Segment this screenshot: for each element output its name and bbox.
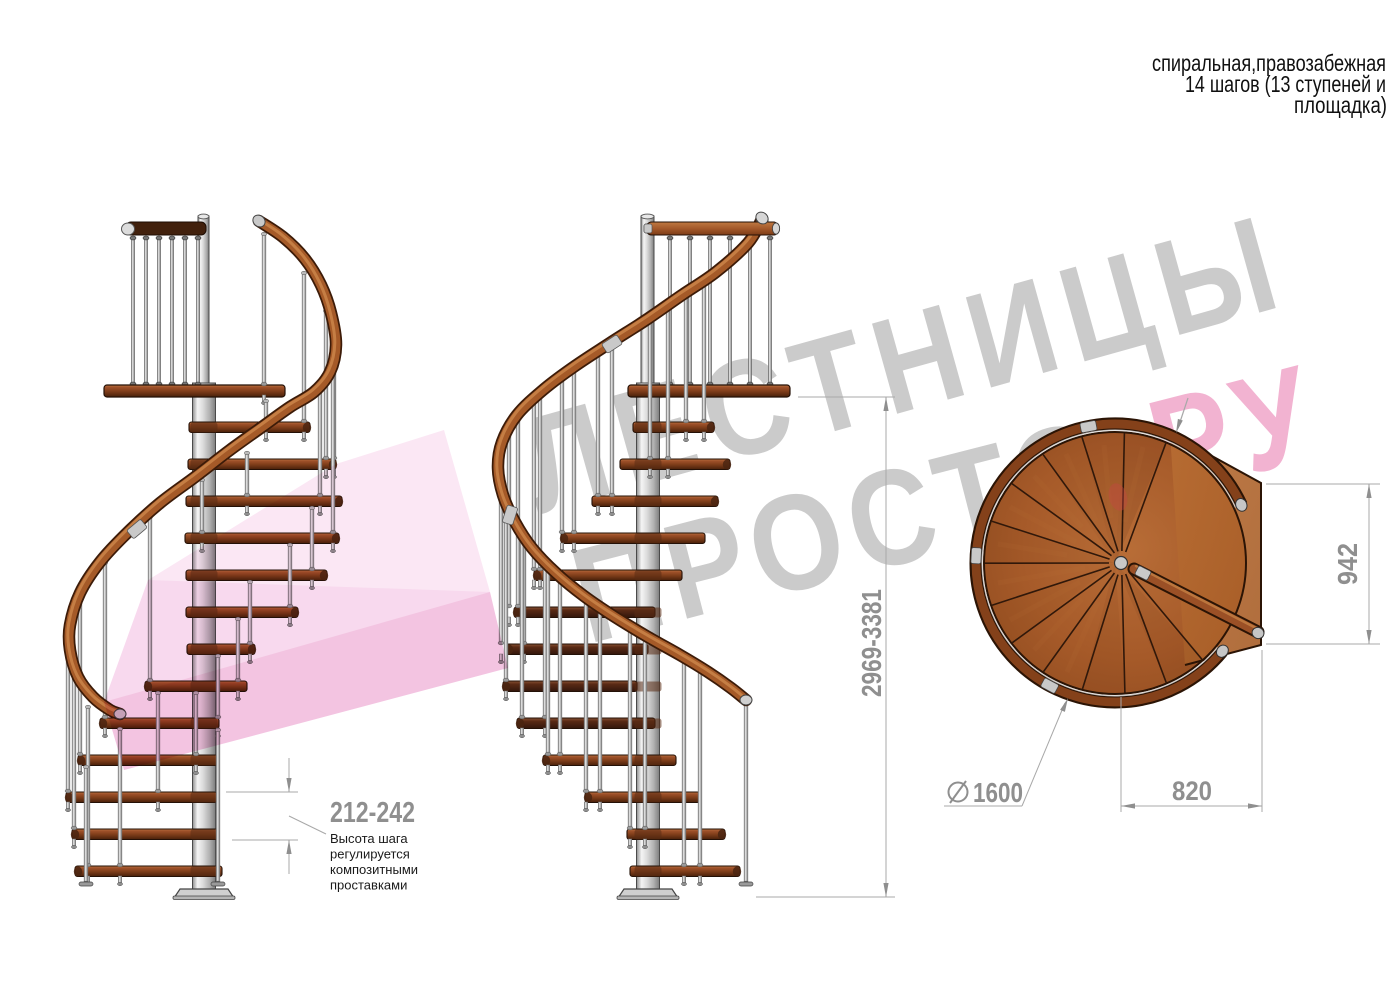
svg-text:площадка): площадка) [1294,92,1387,118]
svg-text:212-242: 212-242 [330,797,415,829]
svg-text:820: 820 [1172,776,1212,806]
svg-text:Высота шагарегулируетсякомпози: Высота шагарегулируетсякомпозитнымипрост… [330,831,418,893]
svg-text:942: 942 [1332,543,1363,585]
svg-text:1600: 1600 [973,777,1023,808]
svg-text:2969-3381: 2969-3381 [856,589,887,697]
